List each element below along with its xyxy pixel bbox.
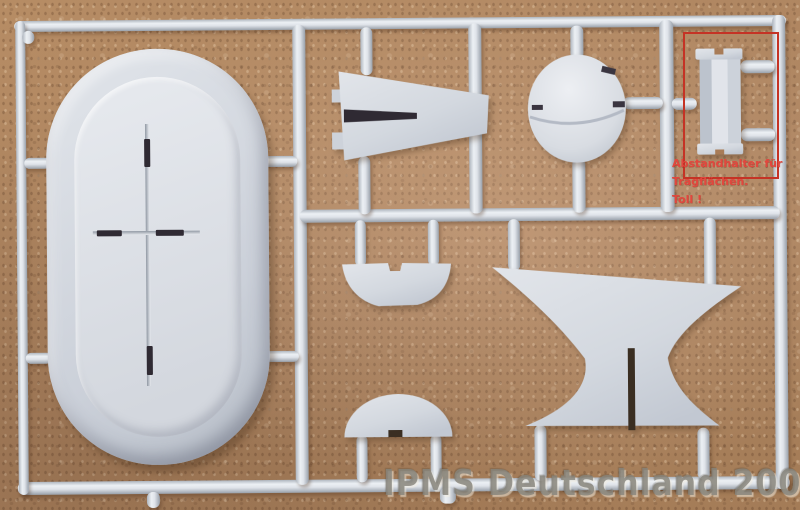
dome-slot-right — [613, 101, 625, 107]
part-engine-cowling-dome — [527, 54, 626, 163]
anvil-slot — [628, 348, 636, 430]
half-disc-notch — [388, 430, 402, 437]
part-hull-tray — [342, 263, 451, 307]
part-pylon-anvil — [492, 265, 742, 431]
watermark: IPMS Deutschland 2008 — [383, 463, 800, 504]
annotation-line-2: Tragflächen. — [672, 175, 748, 188]
model-kit-sprue-photo: Abstandhalter für Tragflächen. Toll ! IP… — [0, 0, 800, 510]
annotation-line-1: Abstandhalter für — [672, 157, 782, 170]
annotation-line-3: Toll ! — [672, 193, 702, 206]
sprue-parts-layer — [0, 0, 800, 510]
part-half-disc — [344, 394, 452, 438]
sprue-frame — [0, 0, 800, 510]
dome-slot-left — [532, 105, 543, 110]
part-tail-fin — [332, 70, 490, 160]
